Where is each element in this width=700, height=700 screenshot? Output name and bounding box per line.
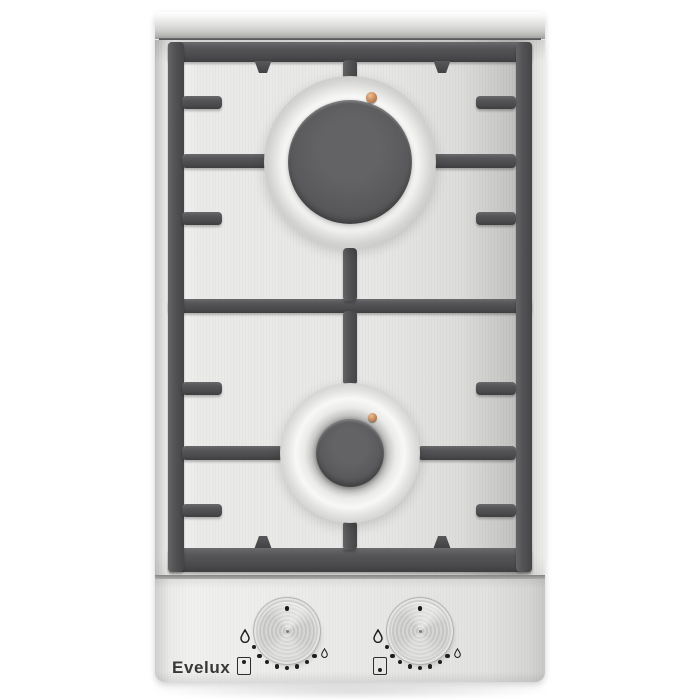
drop-shadow bbox=[148, 683, 552, 699]
grate-bar bbox=[343, 521, 357, 550]
grate-bar bbox=[182, 154, 268, 168]
burner-rear-indicator-icon bbox=[237, 657, 251, 675]
gas-hob: Evelux bbox=[155, 12, 545, 682]
knob-level-dot bbox=[398, 660, 402, 664]
front-burner-cap bbox=[316, 419, 384, 487]
rear-burner-cap bbox=[288, 100, 412, 224]
knob-level-dot bbox=[418, 666, 422, 670]
knob-level-dot bbox=[445, 654, 449, 658]
grate-bar bbox=[516, 42, 532, 572]
grate-foot-tab bbox=[253, 536, 273, 548]
grate-bar bbox=[476, 212, 516, 225]
control-panel: Evelux bbox=[155, 578, 545, 682]
grate-bar bbox=[476, 382, 516, 395]
burner-front-indicator-icon bbox=[373, 657, 387, 675]
knob-level-dot bbox=[428, 664, 432, 668]
grate-bar bbox=[343, 248, 357, 301]
flame-min-icon bbox=[454, 645, 461, 663]
grate-bar bbox=[168, 42, 184, 572]
brand-logo: Evelux bbox=[172, 658, 230, 678]
product-photo-canvas: Evelux bbox=[0, 0, 700, 700]
rear-ignition-electrode-icon bbox=[366, 92, 377, 103]
grate-bar bbox=[476, 96, 516, 109]
knob-level-dot bbox=[305, 660, 309, 664]
burner-tray bbox=[155, 40, 545, 578]
grate-bar bbox=[168, 548, 532, 572]
knob-level-dot bbox=[390, 654, 394, 658]
knob-level-dot bbox=[257, 654, 261, 658]
knob-level-dot bbox=[275, 664, 279, 668]
knob-level-dot bbox=[312, 654, 316, 658]
flame-max-icon bbox=[373, 629, 383, 648]
front-burner-knob[interactable] bbox=[391, 602, 449, 660]
knob-level-dot bbox=[265, 660, 269, 664]
grate-bar bbox=[476, 504, 516, 517]
grate-bar bbox=[168, 42, 532, 62]
grate-foot-tab bbox=[253, 61, 273, 73]
grate-bar bbox=[343, 311, 357, 385]
flame-max-icon bbox=[240, 629, 250, 648]
grate-bar bbox=[182, 504, 222, 517]
panel-seam bbox=[155, 575, 545, 579]
knob-level-dot bbox=[408, 664, 412, 668]
front-ignition-electrode-icon bbox=[368, 413, 377, 422]
hob-top-edge bbox=[155, 12, 545, 39]
rear-burner-knob[interactable] bbox=[258, 602, 316, 660]
grate-bar bbox=[182, 446, 283, 460]
grate-bar bbox=[432, 154, 516, 168]
knob-level-dot bbox=[252, 645, 256, 649]
rear-burner-knob-group bbox=[239, 583, 335, 679]
grate-bar bbox=[182, 96, 222, 109]
grate-foot-tab bbox=[432, 61, 452, 73]
grate-bar bbox=[182, 212, 222, 225]
knob-level-dot bbox=[438, 660, 442, 664]
flame-min-icon bbox=[321, 645, 328, 663]
knob-level-dot bbox=[385, 645, 389, 649]
grate-foot-tab bbox=[432, 536, 452, 548]
grate-bar bbox=[418, 446, 516, 460]
grate-bar bbox=[182, 382, 222, 395]
knob-level-dot bbox=[285, 666, 289, 670]
knob-level-dot bbox=[295, 664, 299, 668]
